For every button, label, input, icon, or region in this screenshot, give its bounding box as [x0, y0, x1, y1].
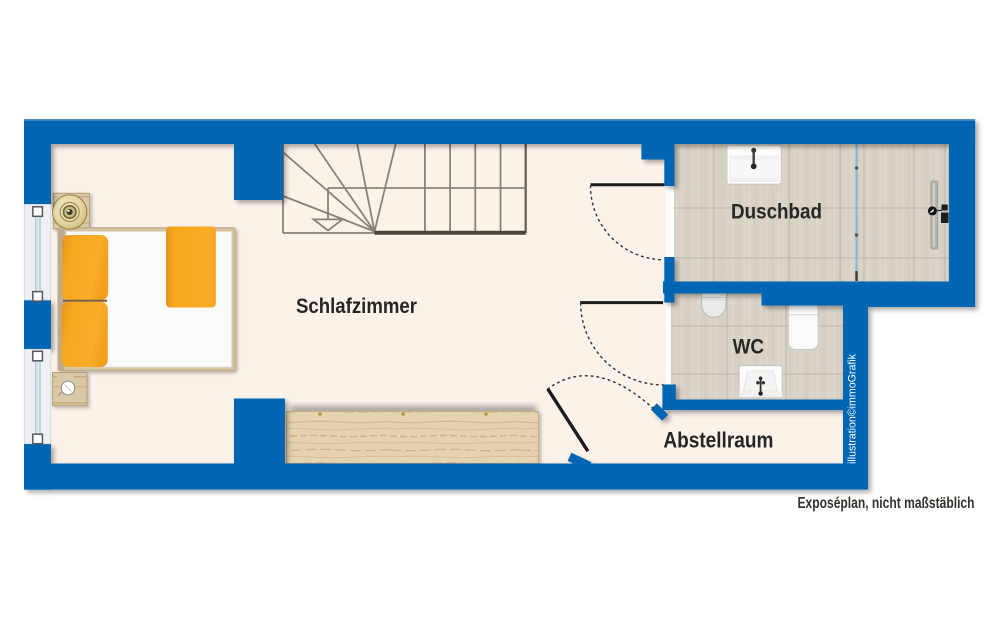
svg-text:WC: WC	[733, 335, 765, 359]
svg-text:Exposéplan, nicht maßstäblich: Exposéplan, nicht maßstäblich	[798, 495, 975, 512]
svg-text:Abstellraum: Abstellraum	[663, 428, 773, 453]
svg-text:Duschbad: Duschbad	[731, 201, 822, 224]
svg-text:Schlafzimmer: Schlafzimmer	[296, 294, 418, 318]
svg-text:illustration©immoGrafik: illustration©immoGrafik	[847, 353, 859, 464]
